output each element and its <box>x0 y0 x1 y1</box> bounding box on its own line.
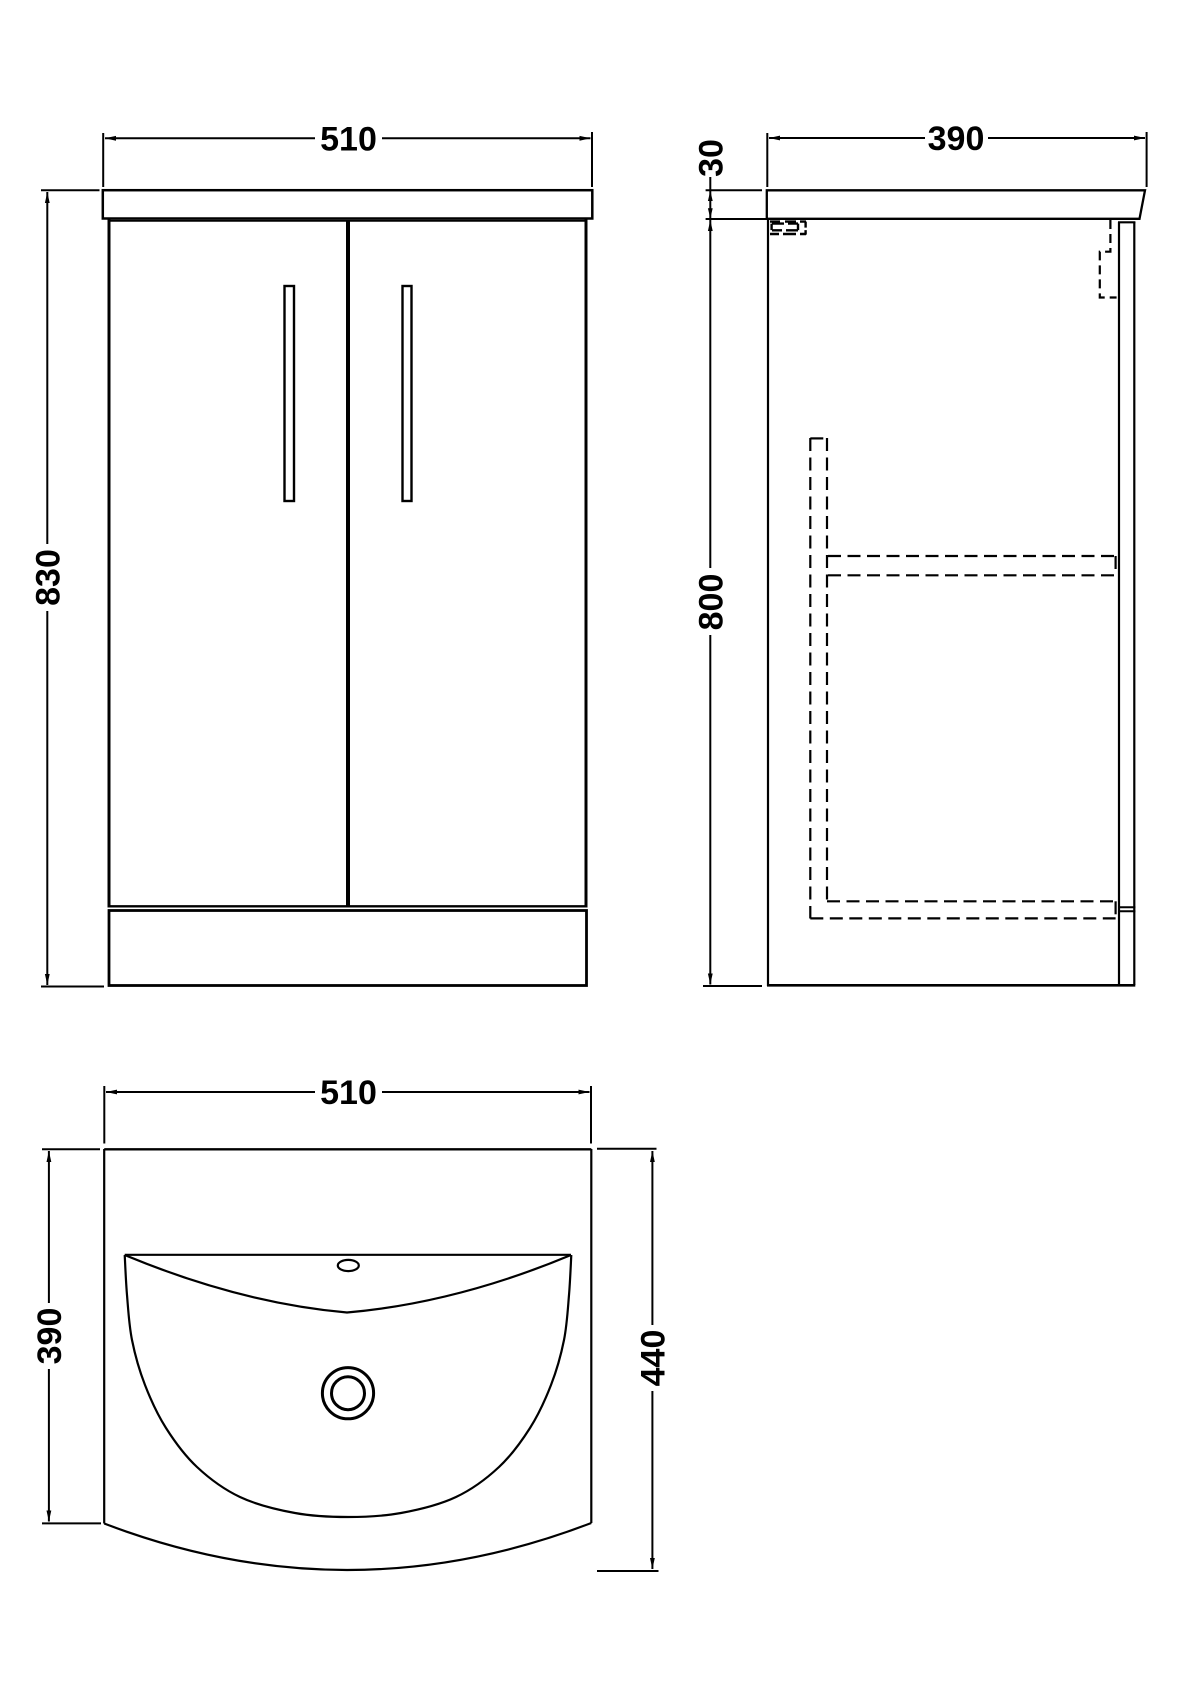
svg-text:30: 30 <box>692 139 730 177</box>
svg-text:830: 830 <box>29 549 67 606</box>
svg-text:510: 510 <box>320 1074 377 1112</box>
svg-text:390: 390 <box>928 120 985 158</box>
svg-text:440: 440 <box>635 1330 673 1387</box>
svg-text:800: 800 <box>692 574 730 631</box>
svg-text:510: 510 <box>320 120 377 158</box>
svg-text:390: 390 <box>31 1308 69 1365</box>
